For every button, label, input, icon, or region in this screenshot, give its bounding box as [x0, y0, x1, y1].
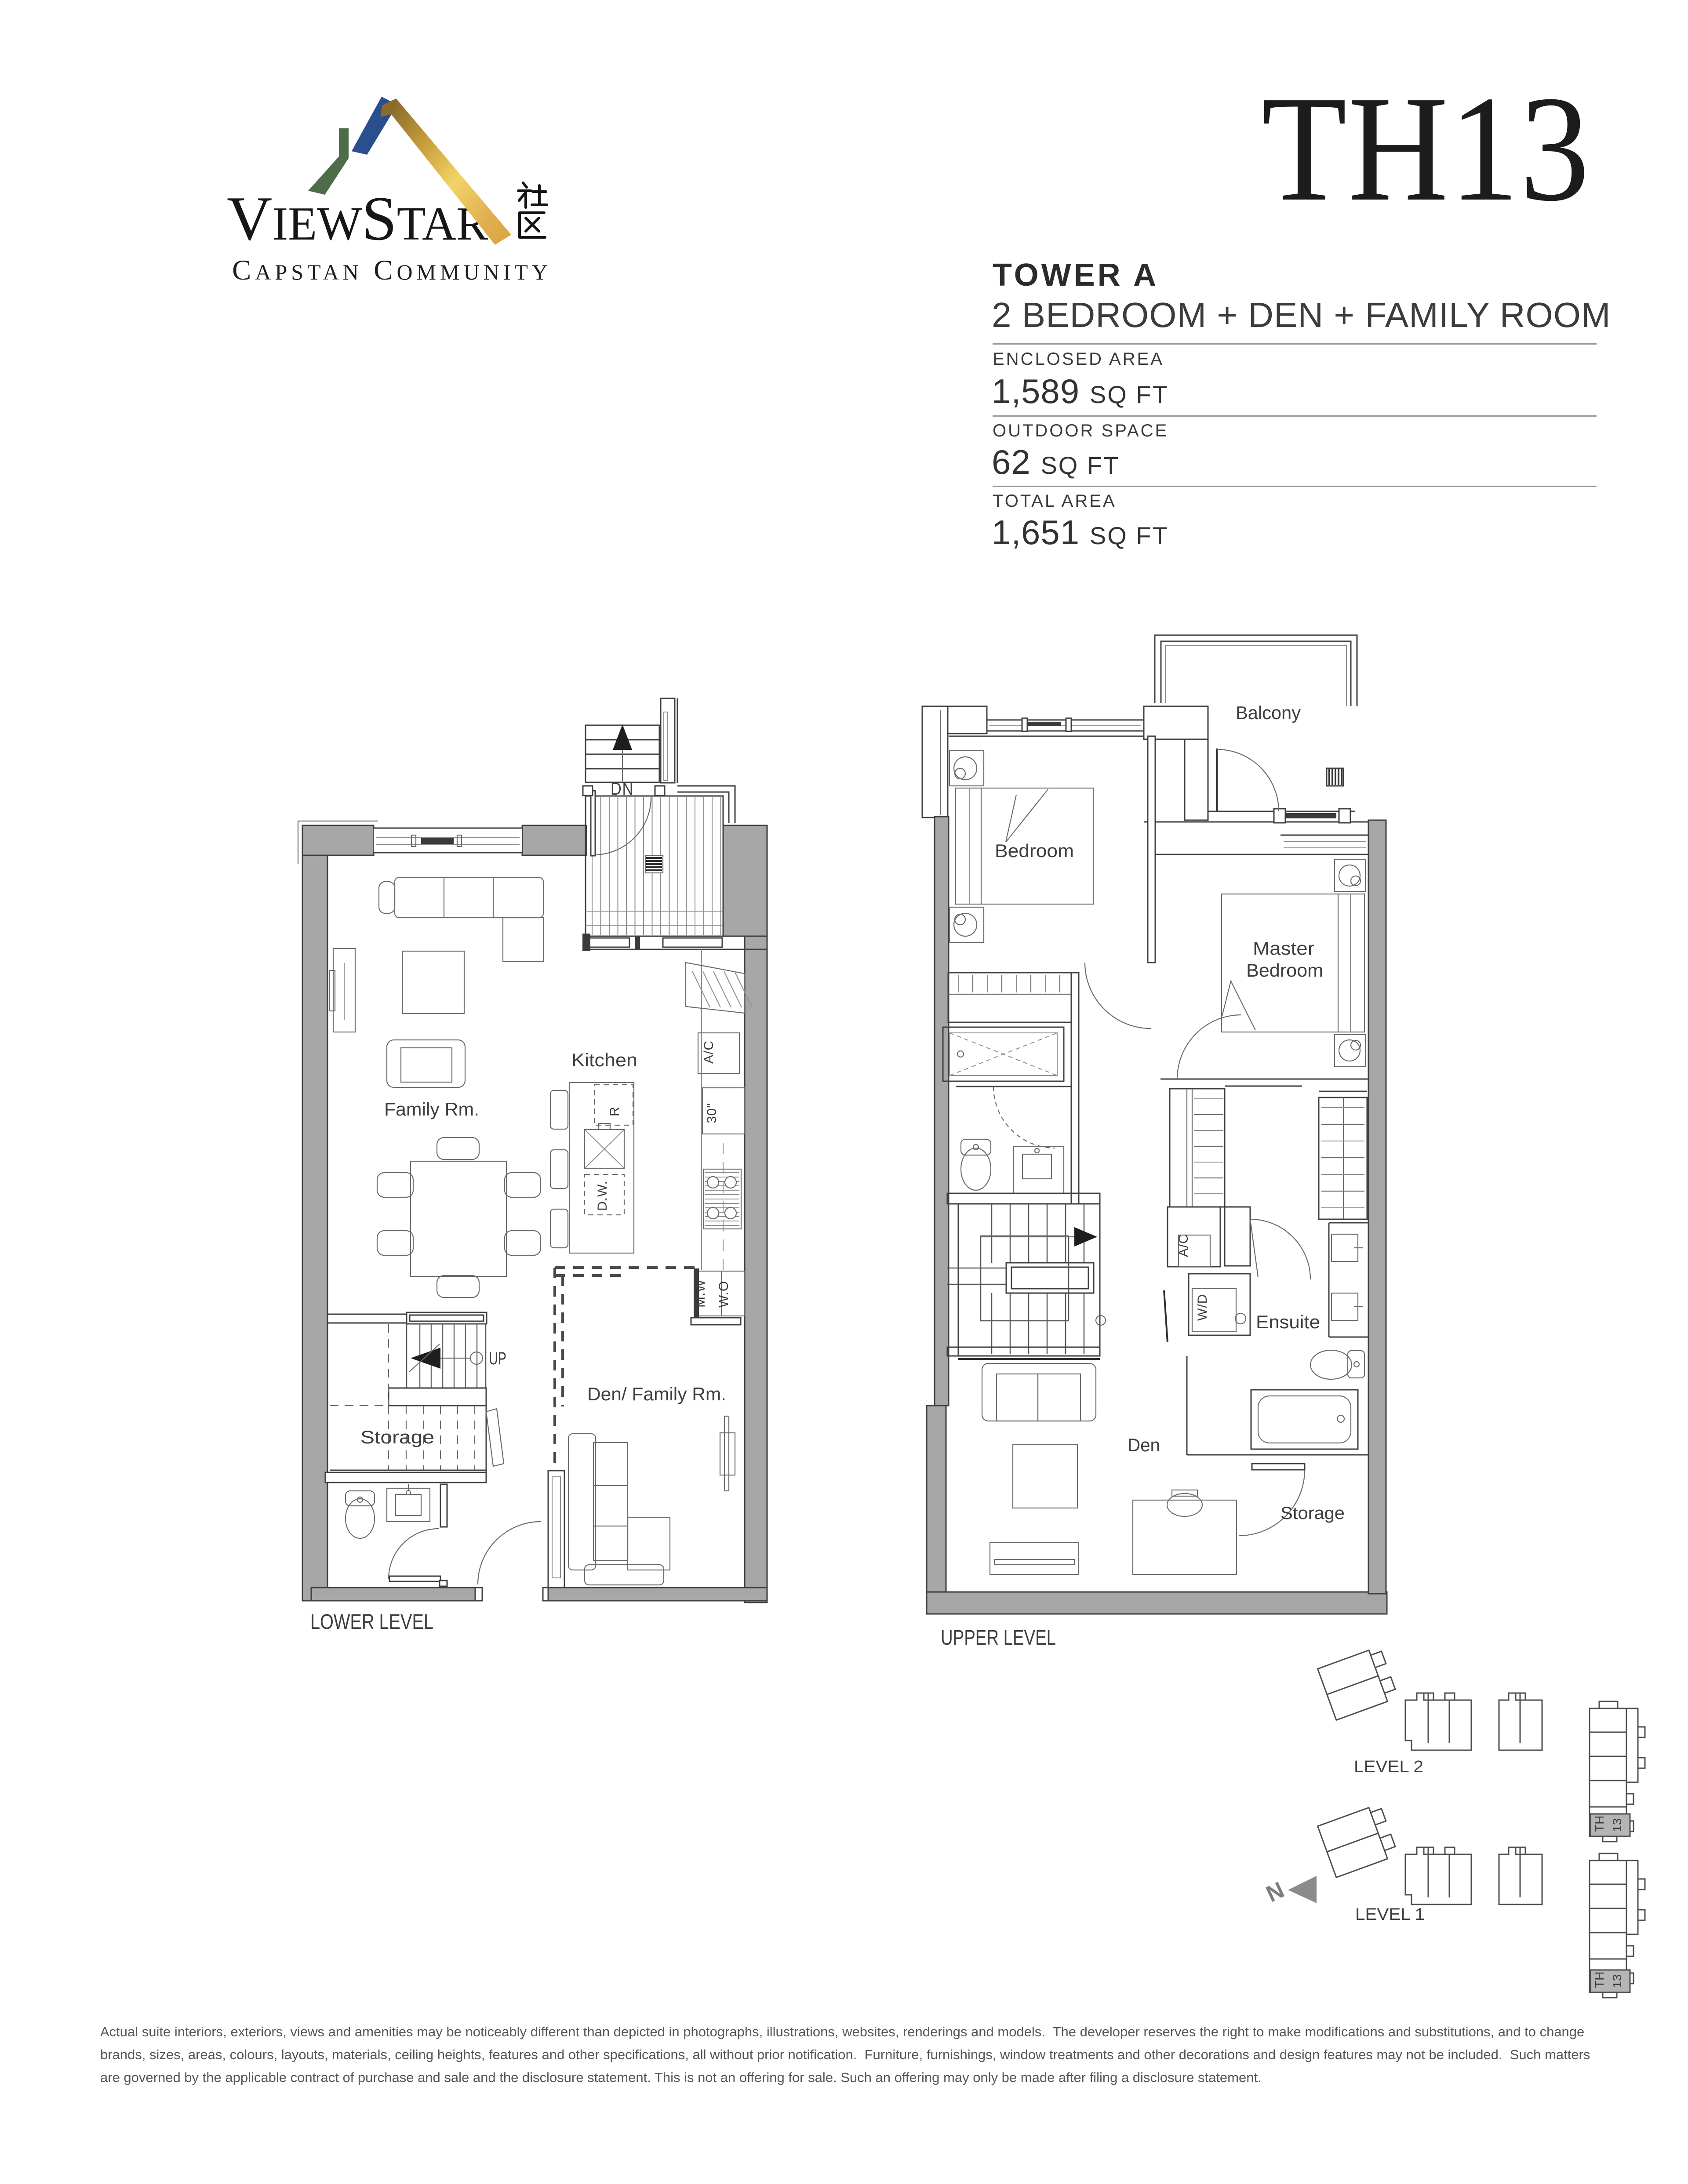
svg-text:Ensuite: Ensuite	[1256, 1312, 1320, 1332]
svg-text:Storage: Storage	[1281, 1504, 1345, 1523]
svg-text:TH: TH	[1593, 1972, 1606, 1988]
svg-text:13: 13	[1610, 1818, 1624, 1832]
svg-text:Bedroom: Bedroom	[1246, 960, 1323, 981]
svg-text:R: R	[608, 1106, 622, 1116]
svg-text:A/C: A/C	[1176, 1234, 1191, 1257]
svg-text:Family Rm.: Family Rm.	[384, 1099, 479, 1119]
svg-text:W.O: W.O	[717, 1281, 731, 1308]
svg-text:N: N	[1262, 1877, 1288, 1907]
svg-text:Master: Master	[1253, 938, 1314, 959]
svg-text:UP: UP	[489, 1349, 506, 1368]
svg-text:D.W.: D.W.	[595, 1181, 610, 1211]
svg-text:Kitchen: Kitchen	[571, 1050, 637, 1070]
svg-text:LEVEL 2: LEVEL 2	[1354, 1758, 1423, 1776]
svg-text:Den: Den	[1128, 1435, 1160, 1455]
svg-text:Bedroom: Bedroom	[995, 840, 1074, 861]
svg-text:LOWER LEVEL: LOWER LEVEL	[310, 1610, 433, 1634]
svg-text:UPPER LEVEL: UPPER LEVEL	[941, 1626, 1056, 1650]
svg-text:Balcony: Balcony	[1236, 702, 1301, 723]
svg-text:W/D: W/D	[1195, 1294, 1210, 1321]
svg-text:30": 30"	[705, 1103, 719, 1123]
svg-text:TH: TH	[1593, 1816, 1606, 1832]
svg-text:13: 13	[1610, 1974, 1624, 1988]
svg-text:LEVEL 1: LEVEL 1	[1355, 1905, 1425, 1924]
svg-text:A/C: A/C	[702, 1040, 716, 1064]
svg-text:DN: DN	[611, 779, 634, 799]
svg-text:M.W: M.W	[693, 1279, 708, 1308]
svg-text:Den/ Family Rm.: Den/ Family Rm.	[587, 1384, 726, 1404]
svg-text:Storage: Storage	[360, 1427, 434, 1447]
